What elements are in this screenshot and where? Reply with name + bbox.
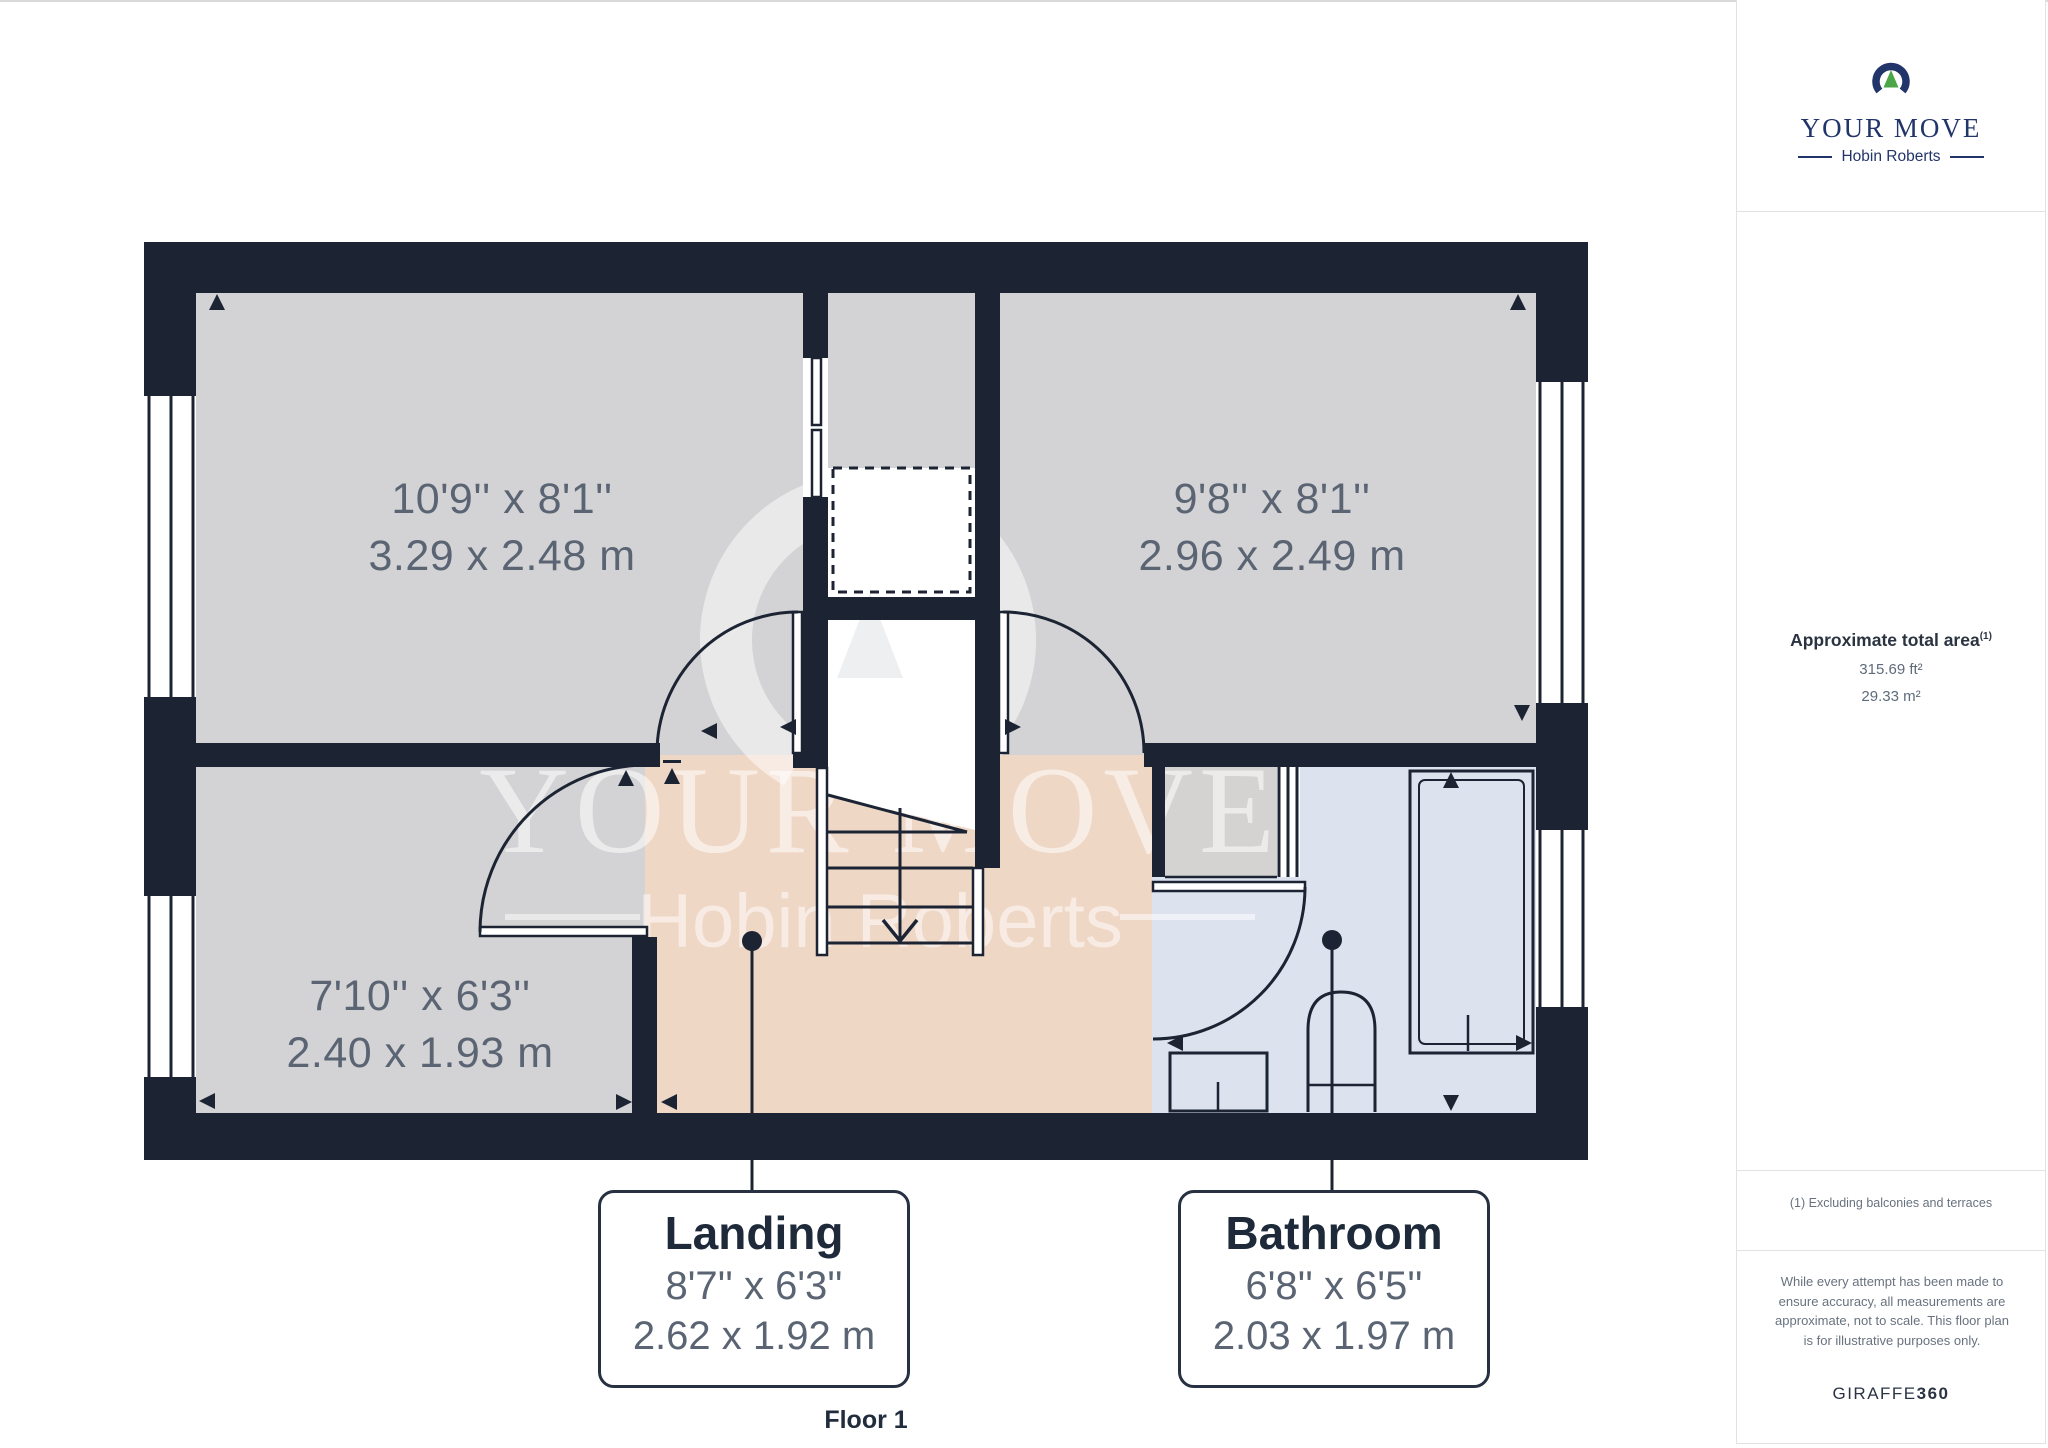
room-dimensions-metric: 2.96 x 2.49 m — [1072, 528, 1472, 585]
brand-name: YOUR MOVE — [1737, 113, 2045, 144]
callout-metric: 2.62 x 1.92 m — [601, 1311, 907, 1361]
thin-partition — [812, 430, 821, 497]
watermark-subtitle: Hobin Roberts — [637, 879, 1123, 964]
dash-left — [1798, 156, 1832, 158]
callout-imperial: 6'8'' x 6'5'' — [1181, 1261, 1487, 1311]
footnote-marker: (1) — [1980, 631, 1992, 642]
brand-subname: Hobin Roberts — [1841, 148, 1940, 166]
stair-rail — [817, 768, 827, 955]
door-leaf — [1153, 882, 1305, 891]
brand-logo: YOUR MOVE Hobin Roberts — [1737, 60, 2045, 166]
callout-metric: 2.03 x 1.97 m — [1181, 1311, 1487, 1361]
landing-callout: Landing 8'7'' x 6'3'' 2.62 x 1.92 m — [598, 1190, 910, 1388]
brand-subname-row: Hobin Roberts — [1737, 148, 2045, 166]
brand-mark-icon — [1867, 60, 1915, 102]
door-leaf — [480, 927, 647, 936]
info-sidebar: YOUR MOVE Hobin Roberts Approximate tota… — [1736, 0, 2046, 1444]
room-dimensions-imperial: 10'9'' x 8'1'' — [302, 471, 702, 528]
divider — [1737, 211, 2045, 212]
floor-label: Floor 1 — [756, 1406, 976, 1435]
dash-right — [1950, 156, 1984, 158]
total-area-imperial: 315.69 ft² — [1737, 661, 2045, 678]
total-area-metric: 29.33 m² — [1737, 688, 2045, 705]
thin-partition — [812, 358, 821, 425]
callout-title: Landing — [601, 1205, 907, 1261]
bedroom-2-label: 9'8'' x 8'1'' 2.96 x 2.49 m — [1072, 471, 1472, 585]
area-footnote: (1) Excluding balconies and terraces — [1737, 1196, 2045, 1210]
bedroom-3-label: 7'10'' x 6'3'' 2.40 x 1.93 m — [220, 968, 620, 1082]
callout-title: Bathroom — [1181, 1205, 1487, 1261]
divider — [1737, 1170, 2045, 1171]
giraffe360-logo: GIRAFFE360 — [1737, 1384, 2045, 1404]
brand-triangle-icon — [1884, 70, 1899, 88]
landing-anchor-dot — [742, 931, 762, 951]
bathroom-anchor-dot — [1322, 930, 1342, 950]
total-area-title: Approximate total area(1) — [1737, 630, 2045, 651]
floorplan-page: YOUR MOVE Hobin Roberts — [0, 0, 2048, 1448]
disclaimer-text: While every attempt has been made to ens… — [1771, 1272, 2013, 1350]
room-dimensions-metric: 3.29 x 2.48 m — [302, 528, 702, 585]
callout-imperial: 8'7'' x 6'3'' — [601, 1261, 907, 1311]
room-dimensions-imperial: 7'10'' x 6'3'' — [220, 968, 620, 1025]
total-area-block: Approximate total area(1) 315.69 ft² 29.… — [1737, 630, 2045, 705]
room-dimensions-imperial: 9'8'' x 8'1'' — [1072, 471, 1472, 528]
room-dimensions-metric: 2.40 x 1.93 m — [220, 1025, 620, 1082]
stair-rail — [973, 868, 983, 955]
divider — [1737, 1250, 2045, 1251]
bedroom-1-label: 10'9'' x 8'1'' 3.29 x 2.48 m — [302, 471, 702, 585]
bathroom-callout: Bathroom 6'8'' x 6'5'' 2.03 x 1.97 m — [1178, 1190, 1490, 1388]
